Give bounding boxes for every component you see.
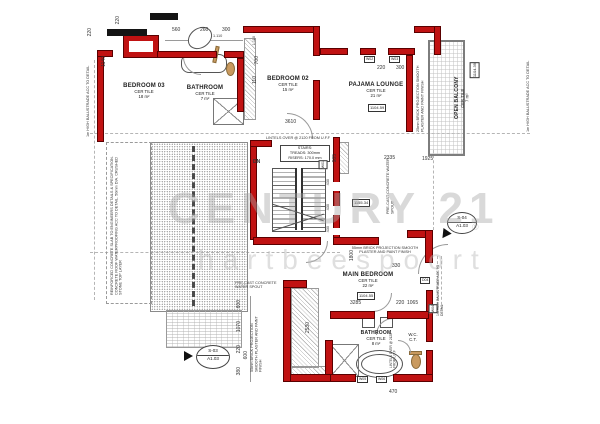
room-area: 7 m² [183,97,227,102]
level-marker-balcony: 1104.39 [470,62,480,78]
dim-380: 380 [237,367,242,375]
wall-mainbed-bottom-a [330,311,375,319]
dim-220: 220 [116,16,121,24]
room-pajama-lounge: PAJAMA LOUNGE CER TILE 21 m² [345,82,407,99]
wall-top-b [224,51,244,58]
room-wc: W.C. C.T. [404,333,422,343]
section-marker-s03: S-03 A1.03 [196,345,230,369]
dim-300: 300 [222,28,230,33]
dim-1925: 1925 [422,157,433,162]
wall-top-a [157,51,217,58]
watermark-office: hartbeespoort [198,244,488,276]
section-arrow [184,351,193,361]
stair-dn-label: DN [253,160,260,165]
wall-stair-top-stub [250,140,272,147]
room-area: 18 m² [114,95,174,100]
floor-plan-canvas: DN LINTELS OVER @ 2120 FROM U.F.F STAIRS… [0,0,600,424]
dim-300: 300 [396,66,404,71]
wall-mainbed-bottom-b [387,311,429,319]
window-tag-w04: W04 [429,304,438,313]
watermark-registered-icon: ® [472,222,479,232]
level-marker-pajama: 1104.59 [368,104,386,112]
room-bathroom-top: BATHROOM CER TILE 7 m² [183,85,227,102]
room-finish: C.T. [404,338,422,343]
dim-985: 985 [333,154,338,162]
window-tag-w06: W06 [376,376,387,383]
lower-roof-hatch [166,310,242,348]
dim-1110: 1.110 [213,35,222,39]
note-spout-left: PRE-CAST CONCRETE WATER SPOUT [235,281,279,290]
dim-1140: 1140 [102,56,107,67]
dim-700: 700 [255,56,260,64]
dim-3285: 3285 [350,301,361,306]
lintel-bar [150,13,178,20]
room-bedroom02: BEDROOM 02 CER TILE 15 m² [262,76,314,93]
toilet-bottom [411,354,421,369]
note-roof-slab: REINFORCED CONCRETE SLAB TO ENGINEERS DE… [110,145,126,295]
shower-bottom [330,344,359,377]
window-tag-w02: W02 [364,56,375,63]
wall-pajama-top-a [320,48,348,55]
wall-bath-bottom-b [330,374,356,382]
note-brick25-balcony: 25mm BRICK PROJECTION SMOOTH PLASTER AND… [416,56,425,132]
wall-terrace-left [283,280,291,382]
toilet-top [226,62,235,76]
window-tag-w03: W03 [389,56,400,63]
dim-220: 220 [237,345,242,353]
dim-1065: 1065 [407,301,418,306]
wall-pajama-balcony [406,55,413,132]
wall-bedroom02-right-b [313,80,320,120]
lintel-note: LINTELS OVER @ 2120 FROM U.F.F [256,136,340,140]
room-area: 21 m² [345,94,407,99]
wall-bath-bottom-c [393,374,433,382]
room-area: 22 m² [340,284,396,289]
room-bedroom03: BEDROOM 03 CER TILE 18 m² [114,83,174,100]
dim-1110: 1.110 [253,36,257,45]
dim-3610: 3610 [285,120,296,125]
duct-box [124,36,158,57]
room-area: 15 m² [262,88,314,93]
wall-pajama-top-c [388,48,415,55]
dim-220: 220 [377,66,385,71]
wall-topright-v [434,26,441,55]
window-tag-w05: W05 [357,376,368,383]
level-marker-mainbed: 1104.55 [357,292,375,300]
dim-560: 560 [172,28,180,33]
note-lintels-bath: LINTELS OVER @ 2120 FROM U.F.F [390,324,397,368]
dim-260: 260 [200,28,208,33]
note-balustrade-left: 1m HIGH BALUSTRADE ACC TO DETAIL [86,55,90,137]
construction-line [94,60,95,300]
wall-terrace-top [283,280,307,288]
window-tag-w01: W01 [319,160,328,169]
dim-600: 600 [244,351,249,359]
dim-1070: 1070 [237,321,242,332]
room-open-balcony: OPEN BALCONY CER TILE 7 m² [455,58,471,138]
dim-2530: 2530 [306,322,311,333]
door-tag-d04: D04 [420,277,430,284]
section-sheet: A1.03 [197,355,229,362]
door-arc-mainbed [373,293,392,312]
wall-pajama-top-b [360,48,376,55]
dim-110: 110 [253,76,258,84]
dim-2335: 2335 [384,156,395,161]
dim-220: 220 [396,301,404,306]
watermark-brand: CENTURY 21 [168,184,499,234]
dim-600: 600 [237,300,242,308]
section-number: S-03 [197,346,229,354]
dim-470: 470 [389,390,397,395]
lintel-bar [107,29,147,36]
note-brick55-left: 55mm BRICK PROJECTION SMOOTH PLASTER AND… [250,306,262,372]
note-balustrade-balcony: 1m HIGH BALUSTRADE ACC TO DETAIL [526,56,530,132]
wall-bedroom02-right-a [313,26,320,56]
wall-bedroom02-top [243,26,319,33]
wall-bathroom-right [237,58,244,112]
dim-220: 220 [88,28,93,36]
